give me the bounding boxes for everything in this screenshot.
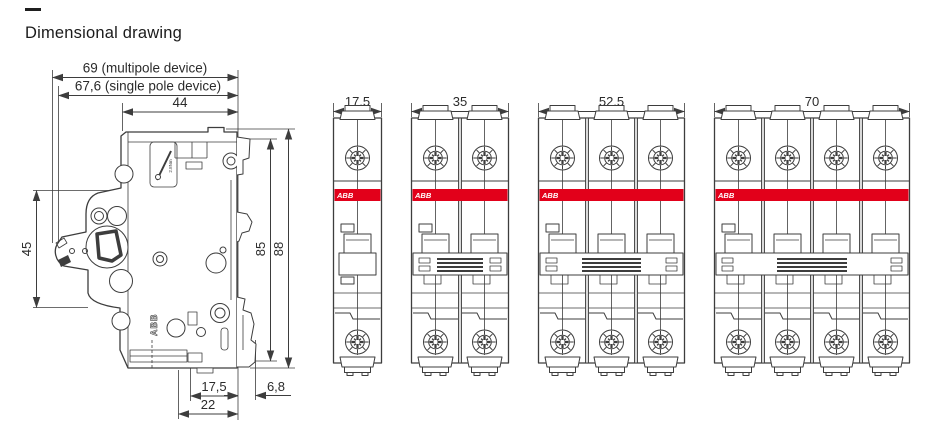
torque-text: 2.8Nm xyxy=(168,159,173,173)
dim-label-2pole-width: 35 xyxy=(453,94,467,109)
dim-label-4pole-width: 70 xyxy=(805,94,819,109)
abb-band: ABB xyxy=(335,189,381,201)
dim-label-total-height: 88 xyxy=(271,242,286,256)
dim-label-base-depth: 22 xyxy=(201,397,215,412)
front-view-3pole: 52,5 ABB xyxy=(538,94,685,376)
abb-logo-text: ABB xyxy=(717,191,735,200)
dim-label-body-height: 85 xyxy=(253,242,268,256)
abb-band: ABB xyxy=(540,189,684,201)
abb-moulded-logo: ABB xyxy=(149,314,159,337)
front-view-4pole: 70 ABB xyxy=(714,94,910,376)
abb-logo-text: ABB xyxy=(414,191,432,200)
abb-logo-text: ABB xyxy=(541,191,559,200)
front-view-2pole: 35 ABB xyxy=(411,94,509,376)
dim-label-handle-height: 45 xyxy=(19,242,34,256)
dim-label-multipole-width: 69 (multipole device) xyxy=(83,61,208,76)
dimensional-drawing-svg: 69 (multipole device) 67,6 (single pole … xyxy=(0,0,938,445)
page: Dimensional drawing xyxy=(0,0,938,445)
dim-label-front-width: 44 xyxy=(172,95,188,110)
side-view: 69 (multipole device) 67,6 (single pole … xyxy=(19,61,295,421)
front-view-1pole: 17,5 ABB xyxy=(333,94,382,376)
abb-band: ABB xyxy=(716,189,909,201)
abb-logo-text: ABB xyxy=(336,191,354,200)
dim-label-singlepole-width: 67,6 (single pole device) xyxy=(75,79,221,94)
abb-band: ABB xyxy=(413,189,508,201)
dim-label-base-width: 17,5 xyxy=(201,379,226,394)
dim-label-clip-depth: 6,8 xyxy=(267,379,285,394)
